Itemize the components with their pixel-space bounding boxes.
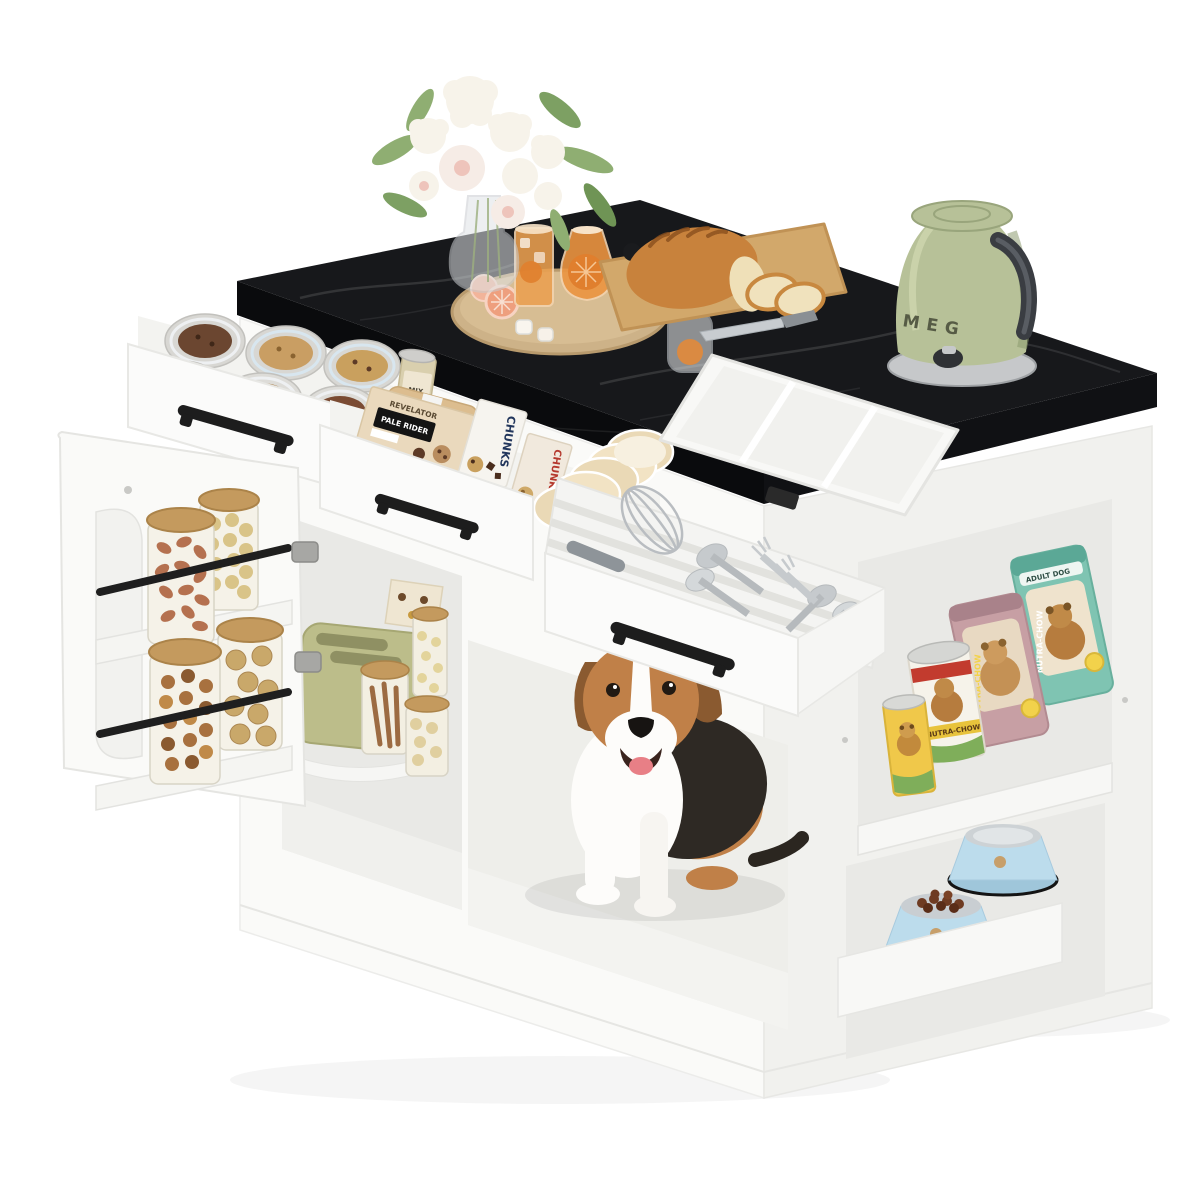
bamboo-lid: [199, 489, 259, 511]
iced-drink-glass: [515, 224, 553, 306]
dog-tongue: [629, 757, 653, 775]
shelf-peg: [842, 737, 848, 743]
bamboo-lid: [412, 607, 448, 621]
jar-pasta: [412, 607, 448, 696]
open-door-rack: [58, 432, 321, 810]
electric-kettle: MEG: [888, 201, 1036, 386]
bamboo-lid: [361, 661, 409, 679]
bowl-dog-sticker: [994, 856, 1006, 868]
bamboo-lid: [149, 639, 221, 665]
jar-hazelnuts-small: [405, 696, 449, 776]
bamboo-lid: [147, 508, 215, 532]
shelf-peg: [1122, 697, 1128, 703]
jar-walnuts: [217, 618, 283, 750]
kitchen-island-photo: ADULT DOG NUTRA-CHOW NUTRA-CHOW: [0, 0, 1200, 1200]
bag-teal-brand-text: NUTRA-CHOW: [1036, 610, 1045, 673]
cookie-tin: [246, 326, 326, 380]
door-hinge: [295, 652, 321, 672]
bamboo-lid: [217, 618, 283, 642]
jar-cinnamon: [361, 661, 409, 754]
dog-front-leg: [640, 812, 668, 908]
bamboo-lid: [405, 696, 449, 712]
dog-front-leg: [585, 798, 615, 894]
door-hinge: [292, 542, 318, 562]
product-photo-stage: ADULT DOG NUTRA-CHOW NUTRA-CHOW: [0, 0, 1200, 1200]
left-cabinet-interior: [282, 515, 462, 910]
cookie-tin: [324, 340, 400, 392]
